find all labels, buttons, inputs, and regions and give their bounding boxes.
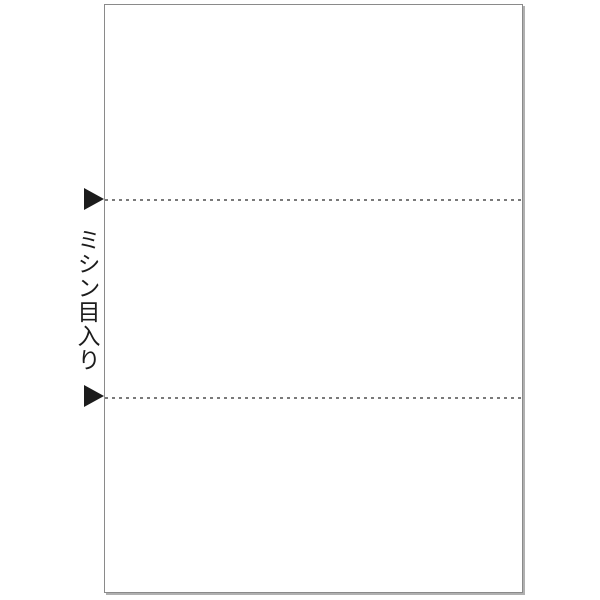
- perforation-line-top: [105, 199, 522, 201]
- arrow-right-icon: [84, 188, 104, 210]
- arrow-right-icon: [84, 385, 104, 407]
- product-illustration: ミシン目入り: [0, 0, 600, 600]
- perforation-label: ミシン目入り: [70, 228, 104, 372]
- perforation-line-bottom: [105, 397, 522, 399]
- paper-sheet: [104, 4, 523, 593]
